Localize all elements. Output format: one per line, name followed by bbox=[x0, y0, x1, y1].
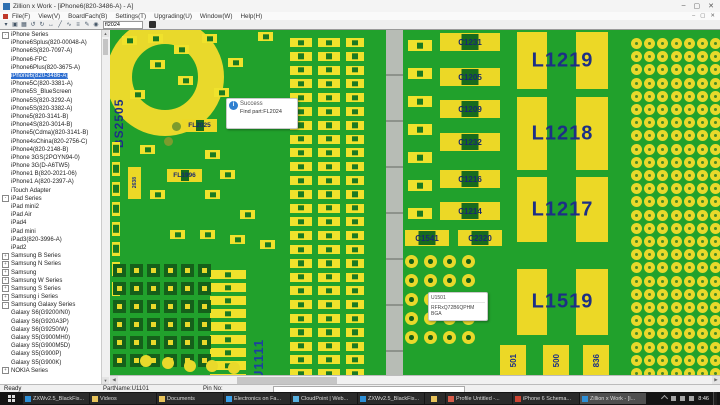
part-info-tooltip: U1501 RFRxQ72B6QPHM BGA bbox=[428, 292, 488, 321]
bga-ball bbox=[684, 130, 695, 141]
taskbar-cloudpoint[interactable]: CloudPoint | Web... bbox=[291, 393, 357, 404]
smd-pad bbox=[318, 245, 340, 254]
via-pad bbox=[113, 264, 126, 277]
bga-ball bbox=[684, 249, 695, 260]
smd-pad bbox=[318, 217, 340, 226]
tree-scroll-thumb[interactable] bbox=[103, 39, 108, 55]
child-restore-button[interactable]: ▢ bbox=[700, 13, 705, 19]
taskbar-item-icon bbox=[360, 396, 366, 402]
bga-ball bbox=[684, 302, 695, 313]
tree-item[interactable]: -iPad Series bbox=[0, 195, 102, 203]
smd-pad bbox=[290, 148, 312, 157]
via-pad bbox=[181, 318, 194, 331]
tree-item-label: iPhone4(820-2148-B) bbox=[11, 147, 68, 153]
bga-ball bbox=[684, 104, 695, 115]
tree-item[interactable]: iPhone4sChina(820-2756-C) bbox=[0, 137, 102, 145]
bga-ball bbox=[644, 51, 655, 62]
bga-ball bbox=[631, 276, 642, 287]
bga-ball bbox=[657, 117, 668, 128]
bga-ball bbox=[671, 144, 682, 155]
smd-pad bbox=[346, 245, 364, 254]
bga-ball bbox=[684, 117, 695, 128]
bga-ball bbox=[671, 223, 682, 234]
tree-item[interactable]: +Samsung N Series bbox=[0, 260, 102, 268]
rotate-left-icon[interactable]: ↺ bbox=[29, 21, 37, 29]
bga-ball bbox=[462, 274, 475, 287]
smd-pad bbox=[178, 76, 193, 85]
bga-ball bbox=[671, 91, 682, 102]
smd-pad bbox=[150, 60, 165, 69]
menu-item[interactable]: View(V) bbox=[38, 13, 60, 20]
smd-pad bbox=[112, 182, 120, 196]
smd-pad bbox=[318, 314, 340, 323]
bga-ball bbox=[684, 223, 695, 234]
bga-ball bbox=[710, 64, 720, 75]
tree-item[interactable]: Galaxy S5(G900K) bbox=[0, 359, 102, 367]
tree-item[interactable]: iPhone 3GS(2POYN94-0) bbox=[0, 154, 102, 162]
taskbar-folder[interactable] bbox=[425, 393, 445, 404]
bga-ball bbox=[697, 91, 708, 102]
taskbar-item-icon bbox=[226, 396, 232, 402]
measure-icon[interactable]: ╱ bbox=[56, 21, 64, 29]
bga-ball bbox=[710, 144, 720, 155]
via-pad bbox=[181, 264, 194, 277]
bga-ball bbox=[684, 51, 695, 62]
tree-item-label: iPhone5S(820-3292-A) bbox=[11, 98, 72, 104]
smd-pad bbox=[228, 58, 243, 67]
test-point bbox=[140, 355, 152, 367]
tree-item[interactable]: iPhone5(820-3141-B) bbox=[0, 113, 102, 121]
tree-item[interactable]: Galaxy S5(G900MH0) bbox=[0, 334, 102, 342]
tree-expand-toggle[interactable]: + bbox=[2, 367, 9, 374]
tree-item-label: iPad mini2 bbox=[11, 204, 39, 210]
bga-ball bbox=[644, 302, 655, 313]
bga-ball bbox=[631, 302, 642, 313]
smd-pad bbox=[290, 245, 312, 254]
smd-pad bbox=[230, 235, 245, 244]
tree-item[interactable]: iTouch Adapter bbox=[0, 187, 102, 195]
trace-icon[interactable]: ∿ bbox=[65, 21, 73, 29]
hscroll-right-icon[interactable]: ▶ bbox=[712, 376, 720, 384]
tree-item[interactable]: +Samsung B Series bbox=[0, 252, 102, 260]
success-tooltip: i Success Find part:FL2024 bbox=[226, 98, 298, 129]
child-close-button[interactable]: ✕ bbox=[710, 13, 715, 19]
bga-ball bbox=[631, 144, 642, 155]
tree-item-label: iPhone4S(820-3014-B) bbox=[11, 122, 72, 128]
taskbar-electronics[interactable]: Electronics on Fa... bbox=[224, 393, 290, 404]
component-U1111: U1111 bbox=[251, 308, 267, 376]
bga-ball bbox=[684, 355, 695, 366]
bga-ball bbox=[657, 315, 668, 326]
bga-ball bbox=[405, 293, 418, 306]
show-desktop-button[interactable] bbox=[713, 392, 717, 405]
bga-ball bbox=[684, 144, 695, 155]
bga-ball bbox=[697, 64, 708, 75]
bga-ball bbox=[684, 38, 695, 49]
bga-ball bbox=[405, 255, 418, 268]
move-hand-icon[interactable]: ↔ bbox=[47, 21, 55, 29]
smd-pad bbox=[346, 355, 364, 364]
tray-chevron-icon[interactable] bbox=[661, 395, 668, 402]
bga-ball bbox=[710, 78, 720, 89]
bga-ball bbox=[697, 117, 708, 128]
bga-ball bbox=[684, 196, 695, 207]
bga-ball bbox=[710, 51, 720, 62]
bga-ball bbox=[684, 64, 695, 75]
smd-pad bbox=[210, 335, 246, 344]
bga-ball bbox=[657, 130, 668, 141]
taskbar-zxw-setup[interactable]: ZXWv2.5_BlackFis... bbox=[23, 393, 89, 404]
bga-ball bbox=[684, 276, 695, 287]
bga-ball bbox=[710, 196, 720, 207]
close-button[interactable]: ✕ bbox=[708, 2, 714, 10]
bga-ball bbox=[657, 104, 668, 115]
tree-item-label: iPhone 3GS(2POYN94-0) bbox=[11, 155, 80, 161]
test-point bbox=[228, 362, 240, 374]
hscroll-thumb[interactable] bbox=[237, 377, 337, 384]
tree-item-label: Galaxy S5(G900MH0) bbox=[11, 335, 70, 341]
taskbar-item-icon bbox=[92, 396, 98, 402]
via-pad bbox=[198, 318, 211, 331]
bga-ball bbox=[657, 51, 668, 62]
rotate-right-icon[interactable]: ↻ bbox=[38, 21, 46, 29]
via-pad bbox=[181, 300, 194, 313]
smd-pad bbox=[408, 208, 432, 219]
tree-item-label: iPhone5(820-3141-B) bbox=[11, 114, 68, 120]
bga-ball bbox=[684, 78, 695, 89]
smd-pad bbox=[318, 162, 340, 171]
bga-ball bbox=[644, 262, 655, 273]
bga-ball bbox=[657, 276, 668, 287]
tree-item[interactable]: Galaxy S6(G9200/N0) bbox=[0, 309, 102, 317]
tray-network-icon[interactable] bbox=[671, 396, 676, 401]
tree-item-label: Galaxy S5(G900P) bbox=[11, 351, 61, 357]
tree-item-label: Samsung N Series bbox=[11, 261, 61, 267]
tree-item[interactable]: +Samsung S Series bbox=[0, 285, 102, 293]
tree-scroll-up-icon[interactable]: ▲ bbox=[102, 30, 109, 37]
menu-item[interactable]: Upgrading(U) bbox=[154, 13, 192, 20]
tree-item[interactable]: iPhone 3G(D-A6TW5) bbox=[0, 162, 102, 170]
taskbar-zillion-active[interactable]: Zillion x Work - [i... bbox=[580, 393, 646, 404]
smd-pad bbox=[112, 202, 120, 216]
menu-item[interactable]: Settings(T) bbox=[115, 13, 146, 20]
tree-item[interactable]: iPad Air bbox=[0, 211, 102, 219]
child-minimize-button[interactable]: – bbox=[692, 13, 695, 19]
bga-ball bbox=[697, 51, 708, 62]
smd-pad bbox=[318, 148, 340, 157]
bga-ball bbox=[443, 255, 456, 268]
tree-item[interactable]: iPhone5S(820-3292-A) bbox=[0, 97, 102, 105]
bga-ball bbox=[710, 130, 720, 141]
taskbar-iphone-schematic[interactable]: iPhone 6 Schema... bbox=[513, 393, 579, 404]
tree-item[interactable]: iPhone4S(820-3014-B) bbox=[0, 121, 102, 129]
smd-pad bbox=[408, 180, 432, 191]
bga-ball bbox=[644, 223, 655, 234]
success-tooltip-title: Success bbox=[240, 101, 282, 107]
smd-pad bbox=[346, 79, 364, 88]
smd-pad bbox=[346, 107, 364, 116]
bga-ball bbox=[631, 210, 642, 221]
taskbar-documents[interactable]: Documents bbox=[157, 393, 223, 404]
tree-expand-toggle[interactable]: - bbox=[2, 195, 9, 202]
tree-item-label: iPhone1 B(820-2021-06) bbox=[11, 171, 77, 177]
bga-ball bbox=[657, 342, 668, 353]
bga-ball bbox=[710, 342, 720, 353]
tree-item[interactable]: Galaxy S5(G900M5D) bbox=[0, 342, 102, 350]
smd-pad bbox=[346, 66, 364, 75]
bga-ball bbox=[644, 276, 655, 287]
tree-item[interactable]: iPad2 bbox=[0, 244, 102, 252]
smd-pad bbox=[318, 93, 340, 102]
smd-pad bbox=[318, 328, 340, 337]
tree-item-label: iPhone6-FPC bbox=[11, 57, 47, 63]
smd-pad bbox=[290, 342, 312, 351]
tree-item[interactable]: iPhone6Plus(820-3675-A) bbox=[0, 64, 102, 72]
bga-ball bbox=[684, 157, 695, 168]
bga-ball bbox=[697, 315, 708, 326]
menu-item[interactable]: BoardFach(B) bbox=[68, 13, 107, 20]
smd-pad bbox=[214, 88, 229, 97]
smd-pad bbox=[210, 348, 246, 357]
tree-item-label: Samsung W Series bbox=[11, 278, 62, 284]
bga-ball bbox=[710, 157, 720, 168]
smd-pad bbox=[290, 176, 312, 185]
shield-strip bbox=[386, 30, 403, 376]
tree-expand-toggle[interactable]: + bbox=[2, 253, 9, 260]
smd-pad bbox=[318, 66, 340, 75]
component-C1205: C1205 bbox=[440, 68, 500, 86]
bga-ball bbox=[710, 302, 720, 313]
smd-pad bbox=[318, 121, 340, 130]
smd-pad bbox=[290, 217, 312, 226]
tree-expand-toggle[interactable]: - bbox=[2, 32, 9, 39]
smd-pad bbox=[346, 176, 364, 185]
taskbar-zxw-setup-2[interactable]: ZXWv2.5_BlackFis... bbox=[358, 393, 424, 404]
tree-expand-toggle[interactable]: + bbox=[2, 277, 9, 284]
tree-item[interactable]: Galaxy S6(G920A3P) bbox=[0, 318, 102, 326]
tree-item-label: Samsung B Series bbox=[11, 253, 61, 259]
board-bottom-layer-icon[interactable]: ▦ bbox=[20, 21, 28, 29]
bga-ball bbox=[644, 289, 655, 300]
bga-ball bbox=[697, 130, 708, 141]
tree-item[interactable]: iPhone5S_BlueScreen bbox=[0, 88, 102, 96]
bga-ball bbox=[405, 274, 418, 287]
tree-item[interactable]: -Samsung Galaxy Series bbox=[0, 301, 102, 309]
smd-pad bbox=[205, 150, 220, 159]
bga-ball bbox=[684, 315, 695, 326]
bga-ball bbox=[631, 183, 642, 194]
smd-pad bbox=[318, 204, 340, 213]
via-pad bbox=[198, 282, 211, 295]
bga-ball bbox=[710, 38, 720, 49]
tree-expand-toggle[interactable]: + bbox=[2, 294, 9, 301]
taskbar-item-icon bbox=[515, 396, 521, 402]
bga-ball bbox=[697, 144, 708, 155]
tree-item[interactable]: iPhone6(820-3486-A) bbox=[0, 72, 102, 80]
smd-pad bbox=[346, 121, 364, 130]
bga-ball bbox=[710, 104, 720, 115]
bga-ball bbox=[405, 331, 418, 344]
component-L1218: L1218 bbox=[517, 97, 608, 170]
smd-pad bbox=[258, 32, 273, 41]
find-part-input[interactable] bbox=[103, 21, 143, 29]
start-button[interactable] bbox=[0, 392, 22, 405]
smd-pad bbox=[408, 152, 432, 163]
bga-ball bbox=[657, 210, 668, 221]
tray-volume-icon[interactable] bbox=[680, 396, 685, 401]
tree-item[interactable]: iPad4 bbox=[0, 219, 102, 227]
smd-pad bbox=[290, 314, 312, 323]
bga-ball bbox=[631, 64, 642, 75]
taskbar-item-icon bbox=[25, 396, 31, 402]
tree-expand-toggle[interactable]: + bbox=[2, 261, 9, 268]
bga-ball bbox=[657, 38, 668, 49]
tree-item[interactable]: -iPhone Series bbox=[0, 31, 102, 39]
smd-pad bbox=[290, 38, 312, 47]
bga-ball bbox=[671, 78, 682, 89]
via-pad bbox=[198, 264, 211, 277]
component-L1519: L1519 bbox=[517, 269, 608, 335]
bga-ball bbox=[671, 196, 682, 207]
find-button[interactable] bbox=[149, 21, 156, 28]
via-pad bbox=[130, 318, 143, 331]
layers-icon[interactable]: ≡ bbox=[74, 21, 82, 29]
tree-item[interactable]: +NOKIA Series bbox=[0, 367, 102, 375]
smd-pad bbox=[346, 190, 364, 199]
bga-ball bbox=[631, 315, 642, 326]
via-pad bbox=[164, 282, 177, 295]
taskbar-videos[interactable]: Videos bbox=[90, 393, 156, 404]
bga-ball bbox=[657, 223, 668, 234]
tree-item[interactable]: iPhone1 B(820-2021-06) bbox=[0, 170, 102, 178]
success-tooltip-body: Find part:FL2024 bbox=[240, 109, 282, 115]
tree-expand-toggle[interactable]: + bbox=[2, 269, 9, 276]
component-C1232: C1232 bbox=[440, 133, 500, 151]
via-pad bbox=[164, 300, 177, 313]
bga-ball bbox=[710, 170, 720, 181]
pcb-canvas[interactable]: i Success Find part:FL2024 U1501 RFRxQ72… bbox=[110, 29, 720, 376]
taskbar-profile-untitled[interactable]: Profile Untitled -... bbox=[446, 393, 512, 404]
bga-ball bbox=[644, 157, 655, 168]
tree-item[interactable]: iPhone6-FPC bbox=[0, 56, 102, 64]
tree-item[interactable]: iPhone5S(820-3382-A) bbox=[0, 105, 102, 113]
smd-pad bbox=[290, 204, 312, 213]
minimize-button[interactable]: – bbox=[682, 2, 686, 10]
bga-ball bbox=[710, 262, 720, 273]
restore-button[interactable]: ▢ bbox=[694, 2, 701, 10]
tree-item-label: iPhone Series bbox=[11, 32, 48, 38]
tree-item[interactable]: +Samsung W Series bbox=[0, 277, 102, 285]
bga-ball bbox=[671, 51, 682, 62]
select-arrow-icon[interactable]: ▾ bbox=[2, 21, 10, 29]
via-pad bbox=[130, 282, 143, 295]
bga-ball bbox=[657, 196, 668, 207]
bga-ball bbox=[657, 170, 668, 181]
smd-pad bbox=[200, 230, 215, 239]
tree-item[interactable]: iPhone1 A(820-2397-A) bbox=[0, 178, 102, 186]
tree-scrollbar[interactable]: ▲ ▼ bbox=[101, 30, 110, 384]
tree-item[interactable]: +Samsung bbox=[0, 268, 102, 276]
menu-item[interactable]: Window(W) bbox=[200, 13, 233, 20]
bga-ball bbox=[644, 170, 655, 181]
board-top-layer-icon[interactable]: ▣ bbox=[11, 21, 19, 29]
tree-item[interactable]: iPhone4(820-2148-B) bbox=[0, 146, 102, 154]
smd-pad bbox=[408, 68, 432, 79]
bga-ball bbox=[697, 78, 708, 89]
bga-ball bbox=[697, 236, 708, 247]
taskbar-item-icon bbox=[431, 396, 437, 402]
tree-item-label: iPhone6Plus(820-3675-A) bbox=[11, 65, 80, 71]
tree-item[interactable]: iPhone5C(820-3381-A) bbox=[0, 80, 102, 88]
tree-expand-toggle[interactable]: - bbox=[2, 302, 9, 309]
smd-pad bbox=[318, 79, 340, 88]
tree-item[interactable]: Galaxy S6(G9250/W) bbox=[0, 326, 102, 334]
via-pad bbox=[147, 336, 160, 349]
tray-clock[interactable]: 8:46 bbox=[698, 396, 709, 402]
bga-ball bbox=[697, 342, 708, 353]
tree-item[interactable]: iPhone6Splus(820-00048-A) bbox=[0, 39, 102, 47]
smd-pad bbox=[260, 240, 275, 249]
bga-ball bbox=[424, 274, 437, 287]
annotate-icon[interactable]: ✎ bbox=[83, 21, 91, 29]
bga-ball bbox=[644, 130, 655, 141]
zoom-icon[interactable]: ◉ bbox=[92, 21, 100, 29]
tree-item-label: iTouch Adapter bbox=[11, 188, 51, 194]
bga-ball bbox=[644, 210, 655, 221]
bga-ball bbox=[697, 104, 708, 115]
bga-ball bbox=[631, 170, 642, 181]
bga-ball bbox=[657, 289, 668, 300]
hscroll-left-icon[interactable]: ◀ bbox=[110, 376, 118, 384]
tree-expand-toggle[interactable]: + bbox=[2, 285, 9, 292]
smd-pad bbox=[318, 38, 340, 47]
bga-ball bbox=[710, 183, 720, 194]
tree-item[interactable]: iPhone5(Cdma)(820-3141-B) bbox=[0, 129, 102, 137]
tree-item[interactable]: Galaxy S5(G900P) bbox=[0, 350, 102, 358]
smd-pad bbox=[210, 309, 246, 318]
bga-ball bbox=[424, 255, 437, 268]
bga-ball bbox=[671, 38, 682, 49]
bga-ball bbox=[684, 183, 695, 194]
bga-ball bbox=[644, 117, 655, 128]
tree-item[interactable]: iPad mini2 bbox=[0, 203, 102, 211]
tree-item[interactable]: iPhone6S(820-7097-A) bbox=[0, 47, 102, 55]
tree-item[interactable]: +Samsung i Series bbox=[0, 293, 102, 301]
component-500: 500 bbox=[543, 345, 569, 376]
bga-ball bbox=[697, 196, 708, 207]
tray-keyboard-icon[interactable] bbox=[689, 396, 694, 401]
smd-pad bbox=[174, 45, 189, 54]
tree-item[interactable]: iPad mini bbox=[0, 228, 102, 236]
bga-ball bbox=[644, 78, 655, 89]
menu-bar: File(F)View(V)BoardFach(B)Settings(T)Upg… bbox=[0, 12, 720, 20]
bga-ball bbox=[644, 183, 655, 194]
smd-pad bbox=[346, 162, 364, 171]
bga-ball bbox=[710, 249, 720, 260]
bga-ball bbox=[671, 249, 682, 260]
smd-pad bbox=[318, 52, 340, 61]
menu-item[interactable]: Help(H) bbox=[240, 13, 262, 20]
smd-pad bbox=[346, 52, 364, 61]
taskbar-item-icon bbox=[582, 396, 588, 402]
bga-ball bbox=[644, 236, 655, 247]
tree-item[interactable]: iPad3(820-3996-A) bbox=[0, 236, 102, 244]
bga-ball bbox=[631, 249, 642, 260]
menu-item[interactable]: File(F) bbox=[12, 13, 30, 20]
zxw-application-window: Zillion x Work - [iPhone6(820-3486-A) - … bbox=[0, 0, 720, 405]
tree-scroll-down-icon[interactable]: ▼ bbox=[102, 377, 109, 384]
via-pad bbox=[164, 336, 177, 349]
